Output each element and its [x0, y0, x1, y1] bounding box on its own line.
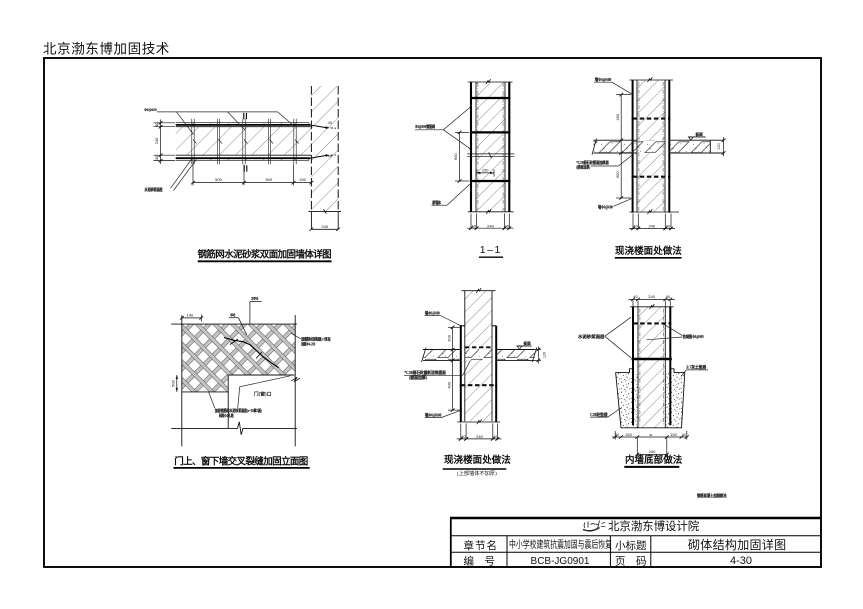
svg-text:40: 40	[493, 434, 498, 439]
svg-text:50: 50	[615, 433, 619, 437]
svg-text:120: 120	[542, 352, 546, 358]
svg-text:1–1: 1–1	[480, 244, 502, 256]
svg-text:钢筋混凝土加固做法: 钢筋混凝土加固做法	[697, 492, 727, 499]
svg-text:现浇楼面处做法: 现浇楼面处做法	[444, 454, 511, 466]
svg-text:240: 240	[487, 223, 494, 228]
svg-text:40: 40	[666, 224, 671, 229]
svg-text:150: 150	[625, 432, 632, 437]
svg-text:240: 240	[649, 449, 656, 454]
svg-text:原墙体: 原墙体	[432, 199, 442, 205]
svg-text:北京渤东博加固技术: 北京渤东博加固技术	[43, 41, 170, 57]
svg-text:板面: 板面	[696, 132, 704, 137]
svg-text:40: 40	[154, 122, 159, 127]
svg-text:(上部墙体不加厚): (上部墙体不加厚)	[457, 469, 497, 477]
svg-text:中小学校建筑抗震加固与震后恢复: 中小学校建筑抗震加固与震后恢复	[509, 538, 612, 551]
svg-text:墙Φ6@600: 墙Φ6@600	[425, 411, 442, 417]
svg-text:水泥砂浆面层: 水泥砂浆面层	[144, 186, 163, 192]
svg-text:现浇楼面处做法: 现浇楼面处做法	[615, 245, 682, 257]
svg-text:砌体结构加固详图: 砌体结构加固详图	[688, 537, 786, 552]
svg-text:240: 240	[476, 434, 483, 439]
svg-text:600: 600	[453, 153, 458, 160]
svg-text:墙Φ6@600: 墙Φ6@600	[598, 203, 613, 209]
svg-text:墙Φ6@600: 墙Φ6@600	[425, 309, 440, 315]
svg-text:500: 500	[170, 379, 175, 386]
svg-text:400: 400	[615, 113, 620, 120]
svg-text:小标题: 小标题	[615, 540, 647, 552]
svg-text:40: 40	[328, 121, 332, 125]
svg-text:(楼面加厚): (楼面加厚)	[576, 164, 590, 170]
svg-text:150: 150	[299, 177, 306, 182]
svg-text:50: 50	[682, 433, 686, 437]
svg-text:500: 500	[215, 177, 222, 182]
svg-text:600: 600	[615, 171, 620, 178]
svg-text:240: 240	[648, 224, 655, 229]
svg-text:400: 400	[446, 381, 451, 388]
svg-text:Φ6: Φ6	[230, 313, 236, 318]
svg-text:页 码: 页 码	[615, 556, 647, 568]
svg-text:北京渤东博设计院: 北京渤东博设计院	[608, 519, 700, 533]
svg-text:150: 150	[670, 432, 677, 437]
svg-text:120: 120	[717, 143, 721, 149]
svg-text:40: 40	[505, 223, 510, 228]
svg-text:40: 40	[328, 155, 332, 159]
svg-text:C20砼垫层: C20砼垫层	[590, 411, 608, 417]
svg-text:BCB-JG0901: BCB-JG0901	[531, 556, 590, 567]
svg-text:40: 40	[154, 155, 159, 160]
svg-text:240: 240	[648, 294, 655, 299]
svg-text:240: 240	[321, 224, 328, 229]
svg-text:40: 40	[471, 223, 476, 228]
svg-text:墙Φ6@600: 墙Φ6@600	[595, 76, 612, 82]
svg-text:150: 150	[482, 168, 489, 173]
svg-text:140: 140	[187, 312, 194, 317]
svg-text:2Φ6: 2Φ6	[251, 296, 259, 301]
svg-text:门(窗)口: 门(窗)口	[254, 391, 272, 398]
svg-text:水泥砂浆面层: 水泥砂浆面层	[577, 333, 605, 339]
svg-text:300: 300	[446, 334, 451, 341]
svg-text:拉结筋Φ6@600: 拉结筋Φ6@600	[683, 333, 704, 339]
svg-text:240: 240	[154, 137, 159, 144]
svg-text:(楼面加厚): (楼面加厚)	[409, 374, 428, 380]
svg-text:板面: 板面	[524, 341, 532, 346]
svg-text:Φ: Φ	[649, 433, 652, 437]
svg-text:章节名: 章节名	[464, 539, 499, 552]
svg-text:间距Φ4-200: 间距Φ4-200	[301, 340, 315, 346]
svg-text:门上、窗下墙交叉裂缝加固立面图: 门上、窗下墙交叉裂缝加固立面图	[174, 456, 308, 468]
svg-text:40: 40	[461, 434, 466, 439]
svg-text:40: 40	[633, 224, 638, 229]
svg-text:3:7灰土垫层: 3:7灰土垫层	[686, 364, 706, 370]
svg-text:内墙底部做法: 内墙底部做法	[625, 454, 683, 466]
svg-text:间距Φ4扎结: 间距Φ4扎结	[219, 412, 234, 418]
svg-text:编 号: 编 号	[464, 555, 496, 568]
svg-text:钢筋网水泥砂浆双面加固墙体详图: 钢筋网水泥砂浆双面加固墙体详图	[198, 249, 332, 261]
svg-text:Φ6@600: Φ6@600	[144, 107, 157, 112]
svg-text:500: 500	[265, 177, 272, 182]
svg-text:Φ6@600钢筋网: Φ6@600钢筋网	[415, 123, 435, 129]
svg-text:4-30: 4-30	[730, 555, 752, 567]
svg-text:40: 40	[633, 294, 638, 299]
svg-text:40: 40	[666, 294, 671, 299]
